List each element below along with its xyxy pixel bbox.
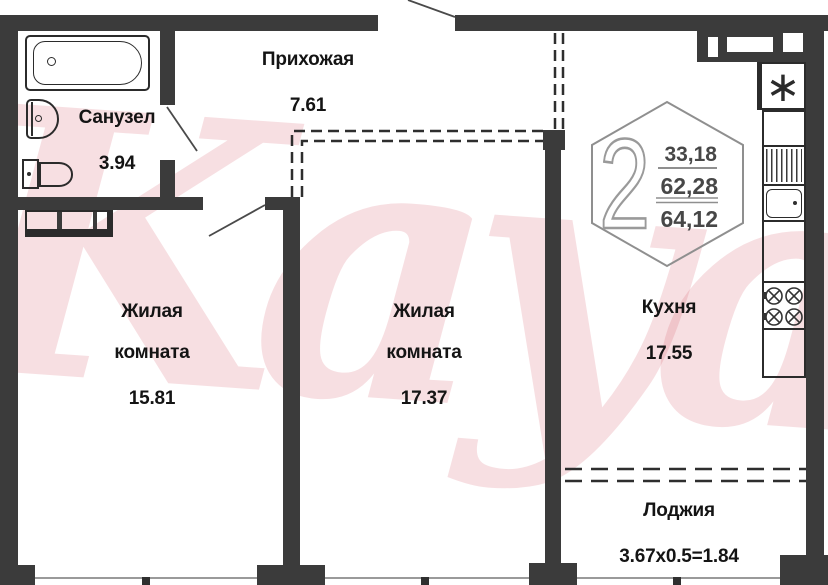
toilet-bowl-icon xyxy=(39,162,73,187)
bathtub-drain xyxy=(47,57,56,66)
room-label-kitchen: Кухня 17.55 xyxy=(642,287,697,374)
entrance-door-leaf xyxy=(408,0,455,17)
room-label-prihozhaya: Прихожая 7.61 xyxy=(262,39,354,126)
pier-bottom-kitchen xyxy=(529,563,577,585)
window-mullion xyxy=(421,577,429,585)
floor-plan: Kayan ∗ xyxy=(0,0,828,585)
room-area: 15.81 xyxy=(91,378,213,419)
wall-right xyxy=(806,15,824,585)
room-name: Жилая комната xyxy=(363,291,485,373)
vent-shaft-slot xyxy=(783,33,803,52)
room-area: 3.67x0.5=1.84 xyxy=(619,536,738,577)
room-label-loggia: Лоджия 3.67x0.5=1.84 xyxy=(619,490,738,577)
wall-between-living-rooms xyxy=(283,210,300,568)
vent-asterisk-icon: ∗ xyxy=(765,62,800,111)
wall-bath-right-upper xyxy=(160,31,175,105)
window-mullion xyxy=(142,577,150,585)
room-label-sanuzel: Санузел 3.94 xyxy=(79,97,156,184)
wall-top-right xyxy=(455,15,828,31)
room-name: Санузел xyxy=(79,97,156,138)
wall-top-left xyxy=(0,15,378,31)
room-area: 17.55 xyxy=(642,333,697,374)
room-name: Кухня xyxy=(642,287,697,328)
pier-bottom-right xyxy=(780,555,828,585)
kitchen-counter xyxy=(762,328,806,378)
room-label-living1: Жилая комната 15.81 xyxy=(91,291,213,419)
room-name: Жилая комната xyxy=(91,291,213,373)
kitchen-sink-drain xyxy=(793,201,797,205)
window-mullion xyxy=(673,577,681,585)
wall-bath-right-lower xyxy=(160,160,175,200)
room-label-living2: Жилая комната 17.37 xyxy=(363,291,485,419)
room-name: Прихожая xyxy=(262,39,354,80)
wardrobe-icon xyxy=(25,210,113,237)
kitchen-counter xyxy=(762,110,806,147)
room-area: 17.37 xyxy=(363,378,485,419)
sink-tap xyxy=(31,102,33,136)
kitchen-drainer-hatch xyxy=(766,149,802,182)
wall-kitchen xyxy=(545,150,561,565)
vent-shaft-slot xyxy=(708,37,718,57)
wall-kitchen-head xyxy=(543,130,565,150)
toilet-tank-dot xyxy=(27,172,31,176)
wall-left xyxy=(0,15,18,585)
wall-doorway-stub xyxy=(265,197,300,210)
kitchen-stove-box xyxy=(762,281,806,330)
sink-drain xyxy=(35,115,42,122)
room-area: 3.94 xyxy=(79,143,156,184)
kitchen-counter xyxy=(762,220,806,283)
room-area: 7.61 xyxy=(262,85,354,126)
vent-shaft-asterisk-box: ∗ xyxy=(757,62,806,110)
pier-bottom-center xyxy=(257,565,325,585)
pier-bottom-left xyxy=(18,565,35,585)
wall-bath-bottom xyxy=(18,197,203,210)
vent-shaft-slot xyxy=(727,37,773,52)
room-name: Лоджия xyxy=(619,490,738,531)
